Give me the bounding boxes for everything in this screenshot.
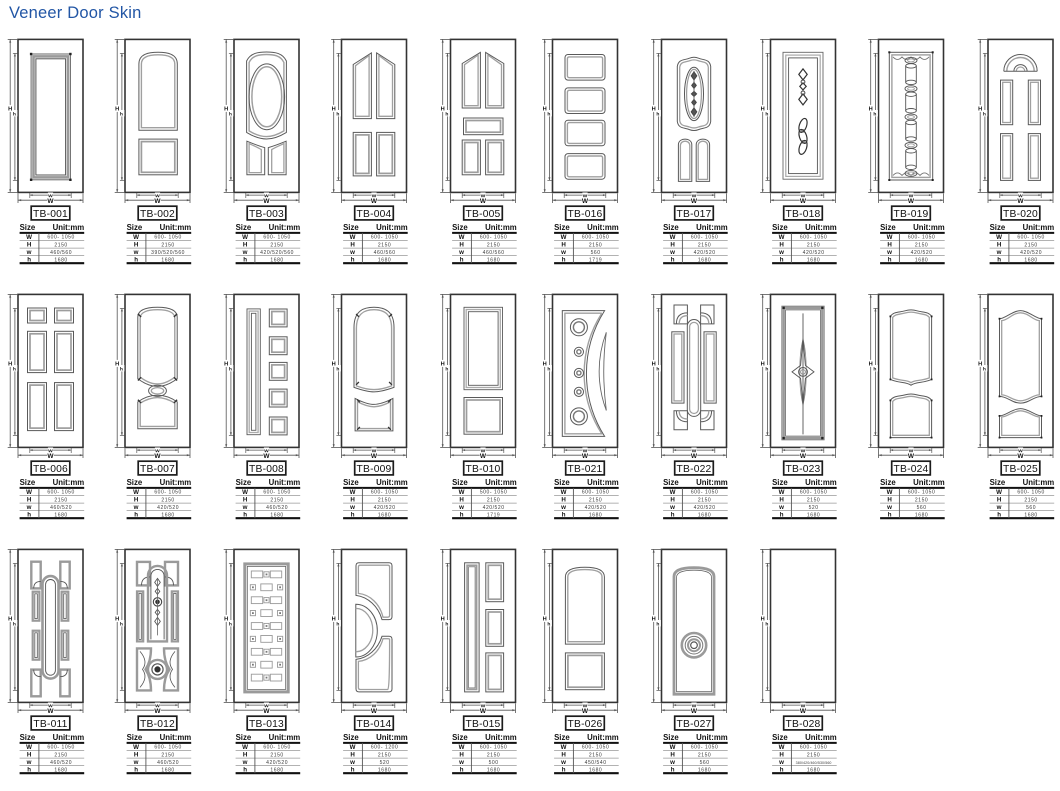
svg-text:w: w — [560, 249, 566, 256]
svg-text:TB-021: TB-021 — [568, 464, 603, 475]
svg-text:H: H — [561, 752, 566, 759]
svg-text:H: H — [115, 617, 119, 623]
svg-text:600- 1050: 600- 1050 — [47, 745, 74, 751]
svg-text:h: h — [873, 111, 876, 117]
svg-text:Size: Size — [343, 478, 359, 487]
svg-text:w: w — [669, 504, 675, 511]
svg-text:TB-028: TB-028 — [786, 719, 821, 730]
svg-text:W: W — [800, 198, 807, 205]
svg-text:2150: 2150 — [270, 752, 283, 758]
svg-text:2150: 2150 — [1024, 242, 1037, 248]
svg-text:H: H — [350, 497, 355, 504]
svg-text:w: w — [349, 759, 355, 766]
svg-text:h: h — [547, 621, 550, 627]
svg-text:2150: 2150 — [807, 242, 820, 248]
svg-text:H: H — [459, 242, 464, 249]
svg-text:h: h — [27, 767, 31, 774]
svg-text:1680: 1680 — [54, 767, 67, 773]
svg-text:W: W — [371, 708, 378, 715]
svg-text:2150: 2150 — [698, 497, 711, 503]
svg-text:1680: 1680 — [698, 512, 711, 518]
svg-text:H: H — [978, 362, 982, 368]
svg-text:2150: 2150 — [54, 497, 67, 503]
svg-text:460/560: 460/560 — [374, 250, 396, 256]
svg-text:2150: 2150 — [1024, 497, 1037, 503]
svg-text:h: h — [120, 621, 123, 627]
svg-text:W: W — [691, 708, 698, 715]
svg-text:Unit:mm: Unit:mm — [587, 223, 619, 232]
svg-text:460/520: 460/520 — [50, 760, 72, 766]
svg-text:380/420/460/530/560: 380/420/460/530/560 — [796, 761, 832, 765]
svg-text:TB-005: TB-005 — [466, 209, 501, 220]
svg-text:h: h — [134, 257, 138, 264]
svg-text:h: h — [888, 257, 892, 264]
svg-text:1680: 1680 — [54, 257, 67, 263]
svg-text:Unit:mm: Unit:mm — [913, 223, 945, 232]
svg-text:600- 1050: 600- 1050 — [582, 745, 609, 751]
svg-text:Unit:mm: Unit:mm — [160, 733, 192, 742]
svg-text:2150: 2150 — [698, 242, 711, 248]
svg-text:560: 560 — [1026, 505, 1036, 511]
svg-text:460/520: 460/520 — [157, 760, 179, 766]
svg-text:1680: 1680 — [698, 257, 711, 263]
svg-text:Unit:mm: Unit:mm — [376, 733, 408, 742]
svg-text:420/520: 420/520 — [266, 760, 288, 766]
svg-text:2150: 2150 — [807, 497, 820, 503]
svg-text:TB-011: TB-011 — [33, 719, 67, 730]
svg-text:TB-027: TB-027 — [677, 719, 712, 730]
svg-text:h: h — [445, 111, 448, 117]
svg-text:h: h — [336, 111, 339, 117]
svg-text:H: H — [224, 107, 228, 113]
svg-text:560: 560 — [917, 505, 927, 511]
svg-text:w: w — [886, 249, 892, 256]
svg-text:Unit:mm: Unit:mm — [1023, 478, 1055, 487]
svg-text:TB-008: TB-008 — [249, 464, 284, 475]
svg-text:h: h — [780, 257, 784, 264]
svg-text:W: W — [371, 198, 378, 205]
svg-text:h: h — [13, 621, 16, 627]
svg-text:W: W — [800, 453, 807, 460]
svg-text:Size: Size — [554, 478, 570, 487]
svg-text:1680: 1680 — [378, 767, 391, 773]
svg-text:w: w — [458, 249, 464, 256]
svg-text:1680: 1680 — [161, 767, 174, 773]
svg-text:w: w — [669, 759, 675, 766]
svg-text:Unit:mm: Unit:mm — [53, 478, 85, 487]
svg-text:TB-023: TB-023 — [786, 464, 821, 475]
svg-text:600- 1050: 600- 1050 — [263, 490, 290, 496]
svg-text:W: W — [242, 744, 248, 751]
svg-text:Unit:mm: Unit:mm — [587, 478, 619, 487]
svg-text:H: H — [761, 107, 765, 113]
svg-text:600- 1050: 600- 1050 — [480, 745, 507, 751]
svg-text:H: H — [670, 752, 675, 759]
svg-text:H: H — [997, 242, 1002, 249]
svg-text:Unit:mm: Unit:mm — [805, 478, 837, 487]
svg-text:600- 1050: 600- 1050 — [154, 745, 181, 751]
svg-text:H: H — [887, 497, 892, 504]
svg-text:W: W — [691, 453, 698, 460]
svg-text:W: W — [779, 489, 785, 496]
svg-text:2150: 2150 — [378, 752, 391, 758]
svg-text:1680: 1680 — [1024, 512, 1037, 518]
svg-text:TB-018: TB-018 — [786, 209, 821, 220]
svg-text:H: H — [134, 497, 139, 504]
svg-text:H: H — [115, 362, 119, 368]
svg-text:W: W — [242, 234, 248, 241]
svg-text:Unit:mm: Unit:mm — [376, 223, 408, 232]
svg-text:W: W — [154, 198, 161, 205]
svg-text:H: H — [670, 497, 675, 504]
svg-text:Size: Size — [990, 223, 1006, 232]
svg-text:1680: 1680 — [161, 512, 174, 518]
svg-text:w: w — [133, 249, 139, 256]
svg-text:600- 1050: 600- 1050 — [582, 490, 609, 496]
svg-text:H: H — [652, 107, 656, 113]
svg-text:W: W — [582, 198, 589, 205]
svg-text:Size: Size — [990, 478, 1006, 487]
svg-text:w: w — [778, 249, 784, 256]
svg-text:W: W — [263, 198, 270, 205]
svg-text:TB-024: TB-024 — [894, 464, 929, 475]
svg-text:Size: Size — [772, 478, 788, 487]
svg-text:600- 1050: 600- 1050 — [800, 490, 827, 496]
svg-text:600- 1050: 600- 1050 — [263, 745, 290, 751]
svg-text:390/520/560: 390/520/560 — [151, 250, 185, 256]
svg-text:600- 1050: 600- 1050 — [263, 235, 290, 241]
svg-text:600- 1200: 600- 1200 — [371, 745, 398, 751]
svg-text:TB-025: TB-025 — [1003, 464, 1038, 475]
svg-text:H: H — [997, 497, 1002, 504]
svg-text:Unit:mm: Unit:mm — [805, 733, 837, 742]
svg-text:600- 1050: 600- 1050 — [800, 235, 827, 241]
svg-text:w: w — [458, 759, 464, 766]
svg-text:W: W — [26, 234, 32, 241]
svg-text:420/520: 420/520 — [1020, 250, 1042, 256]
svg-text:W: W — [1017, 453, 1024, 460]
svg-text:2150: 2150 — [487, 752, 500, 758]
svg-text:Size: Size — [343, 223, 359, 232]
svg-text:Size: Size — [20, 478, 36, 487]
svg-text:Size: Size — [772, 733, 788, 742]
svg-text:H: H — [779, 752, 784, 759]
svg-text:2150: 2150 — [54, 752, 67, 758]
svg-text:H: H — [332, 617, 336, 623]
svg-text:h: h — [765, 111, 768, 117]
svg-text:Unit:mm: Unit:mm — [160, 223, 192, 232]
svg-text:Unit:mm: Unit:mm — [269, 223, 301, 232]
svg-text:Unit:mm: Unit:mm — [485, 478, 517, 487]
svg-text:H: H — [543, 362, 547, 368]
svg-text:2150: 2150 — [161, 752, 174, 758]
svg-text:Size: Size — [452, 733, 468, 742]
svg-text:600- 1050: 600- 1050 — [800, 745, 827, 751]
svg-text:1680: 1680 — [378, 257, 391, 263]
svg-text:W: W — [26, 744, 32, 751]
svg-text:W: W — [47, 198, 54, 205]
svg-text:2150: 2150 — [54, 242, 67, 248]
svg-text:W: W — [350, 234, 356, 241]
svg-text:W: W — [263, 708, 270, 715]
svg-text:W: W — [779, 234, 785, 241]
svg-text:2150: 2150 — [915, 497, 928, 503]
svg-text:W: W — [47, 708, 54, 715]
svg-text:h: h — [243, 512, 247, 519]
svg-text:H: H — [652, 617, 656, 623]
svg-text:H: H — [134, 242, 139, 249]
svg-text:TB-020: TB-020 — [1003, 209, 1038, 220]
svg-text:H: H — [761, 617, 765, 623]
svg-text:TB-009: TB-009 — [357, 464, 392, 475]
svg-text:h: h — [460, 512, 464, 519]
svg-text:420/520: 420/520 — [694, 250, 716, 256]
svg-text:h: h — [229, 621, 232, 627]
svg-text:420/520: 420/520 — [694, 505, 716, 511]
svg-text:600- 1050: 600- 1050 — [154, 490, 181, 496]
svg-text:Size: Size — [772, 223, 788, 232]
svg-text:2150: 2150 — [698, 752, 711, 758]
svg-text:Unit:mm: Unit:mm — [269, 478, 301, 487]
svg-text:H: H — [8, 362, 12, 368]
svg-text:1680: 1680 — [807, 512, 820, 518]
svg-text:H: H — [441, 362, 445, 368]
svg-text:TB-001: TB-001 — [33, 209, 68, 220]
svg-text:h: h — [671, 257, 675, 264]
svg-text:W: W — [459, 234, 465, 241]
svg-text:h: h — [229, 111, 232, 117]
svg-text:600- 1050: 600- 1050 — [154, 235, 181, 241]
svg-text:1680: 1680 — [270, 767, 283, 773]
svg-text:Size: Size — [554, 733, 570, 742]
svg-text:h: h — [460, 767, 464, 774]
svg-text:H: H — [869, 362, 873, 368]
svg-text:TB-002: TB-002 — [140, 209, 175, 220]
svg-text:W: W — [133, 489, 139, 496]
svg-text:H: H — [869, 107, 873, 113]
svg-text:H: H — [543, 617, 547, 623]
svg-text:h: h — [780, 767, 784, 774]
svg-text:W: W — [996, 489, 1002, 496]
svg-text:h: h — [765, 366, 768, 372]
svg-text:h: h — [134, 767, 138, 774]
svg-text:W: W — [133, 744, 139, 751]
svg-text:W: W — [561, 489, 567, 496]
svg-text:h: h — [120, 111, 123, 117]
svg-text:Unit:mm: Unit:mm — [269, 733, 301, 742]
svg-text:w: w — [778, 759, 784, 766]
svg-text:h: h — [547, 366, 550, 372]
svg-text:H: H — [779, 497, 784, 504]
svg-text:460/560: 460/560 — [483, 250, 505, 256]
svg-text:W: W — [800, 708, 807, 715]
svg-text:1680: 1680 — [807, 257, 820, 263]
svg-text:Size: Size — [452, 223, 468, 232]
svg-text:TB-006: TB-006 — [33, 464, 68, 475]
svg-text:Size: Size — [663, 478, 679, 487]
svg-text:w: w — [560, 504, 566, 511]
svg-text:W: W — [670, 234, 676, 241]
svg-text:w: w — [669, 249, 675, 256]
svg-text:w: w — [996, 504, 1002, 511]
svg-text:460/520: 460/520 — [50, 505, 72, 511]
svg-text:W: W — [582, 453, 589, 460]
svg-text:2150: 2150 — [378, 497, 391, 503]
svg-text:w: w — [133, 504, 139, 511]
svg-text:W: W — [779, 744, 785, 751]
svg-text:1680: 1680 — [1024, 257, 1037, 263]
svg-text:1680: 1680 — [915, 257, 928, 263]
svg-text:W: W — [459, 744, 465, 751]
svg-text:Size: Size — [236, 223, 252, 232]
svg-text:h: h — [671, 767, 675, 774]
svg-text:2150: 2150 — [589, 242, 602, 248]
svg-text:2150: 2150 — [589, 752, 602, 758]
svg-text:420/520: 420/520 — [585, 505, 607, 511]
svg-text:Unit:mm: Unit:mm — [485, 733, 517, 742]
svg-text:h: h — [888, 512, 892, 519]
svg-text:Size: Size — [127, 733, 143, 742]
svg-text:h: h — [351, 257, 355, 264]
svg-text:Size: Size — [343, 733, 359, 742]
svg-text:H: H — [27, 242, 32, 249]
svg-text:1680: 1680 — [270, 512, 283, 518]
svg-text:1680: 1680 — [161, 257, 174, 263]
svg-text:460/520: 460/520 — [266, 505, 288, 511]
svg-text:Size: Size — [20, 733, 36, 742]
svg-text:600- 1050: 600- 1050 — [371, 490, 398, 496]
svg-text:W: W — [582, 708, 589, 715]
svg-text:500: 500 — [489, 760, 499, 766]
svg-text:Unit:mm: Unit:mm — [696, 478, 728, 487]
svg-text:420/520: 420/520 — [157, 505, 179, 511]
svg-text:420/520: 420/520 — [911, 250, 933, 256]
svg-text:TB-026: TB-026 — [568, 719, 603, 730]
svg-text:w: w — [133, 759, 139, 766]
svg-text:600- 1050: 600- 1050 — [480, 235, 507, 241]
svg-text:H: H — [332, 362, 336, 368]
svg-text:TB-007: TB-007 — [140, 464, 175, 475]
svg-text:W: W — [996, 234, 1002, 241]
svg-text:1719: 1719 — [589, 257, 602, 263]
svg-text:Size: Size — [880, 478, 896, 487]
svg-text:2150: 2150 — [161, 497, 174, 503]
svg-text:2150: 2150 — [378, 242, 391, 248]
svg-text:H: H — [332, 107, 336, 113]
svg-text:520: 520 — [380, 760, 390, 766]
svg-text:h: h — [562, 767, 566, 774]
svg-text:Unit:mm: Unit:mm — [485, 223, 517, 232]
svg-text:Unit:mm: Unit:mm — [913, 478, 945, 487]
svg-text:W: W — [26, 489, 32, 496]
svg-text:W: W — [459, 489, 465, 496]
svg-text:h: h — [229, 366, 232, 372]
svg-text:W: W — [908, 198, 915, 205]
svg-text:2150: 2150 — [807, 752, 820, 758]
svg-text:W: W — [691, 198, 698, 205]
svg-text:TB-012: TB-012 — [140, 719, 175, 730]
svg-text:TB-016: TB-016 — [568, 209, 603, 220]
svg-text:Unit:mm: Unit:mm — [696, 733, 728, 742]
svg-text:w: w — [458, 504, 464, 511]
svg-text:h: h — [351, 512, 355, 519]
svg-text:1680: 1680 — [915, 512, 928, 518]
svg-text:TB-003: TB-003 — [249, 209, 284, 220]
svg-text:h: h — [243, 257, 247, 264]
svg-text:h: h — [983, 366, 986, 372]
svg-text:w: w — [26, 759, 32, 766]
svg-text:h: h — [13, 366, 16, 372]
svg-text:w: w — [349, 249, 355, 256]
svg-text:h: h — [997, 512, 1001, 519]
svg-text:Size: Size — [236, 733, 252, 742]
svg-text:460/560: 460/560 — [50, 250, 72, 256]
svg-text:H: H — [761, 362, 765, 368]
svg-text:2150: 2150 — [589, 497, 602, 503]
svg-text:2150: 2150 — [487, 242, 500, 248]
svg-text:Unit:mm: Unit:mm — [805, 223, 837, 232]
svg-text:h: h — [460, 257, 464, 264]
svg-text:H: H — [543, 107, 547, 113]
svg-text:520: 520 — [809, 505, 819, 511]
svg-text:600- 1050: 600- 1050 — [691, 490, 718, 496]
svg-text:W: W — [670, 489, 676, 496]
svg-text:2150: 2150 — [487, 497, 500, 503]
svg-text:420/520: 420/520 — [374, 505, 396, 511]
svg-text:Size: Size — [663, 223, 679, 232]
svg-text:420/520: 420/520 — [483, 505, 505, 511]
svg-text:600- 1050: 600- 1050 — [1017, 490, 1044, 496]
svg-text:w: w — [996, 249, 1002, 256]
svg-text:Unit:mm: Unit:mm — [160, 478, 192, 487]
svg-text:W: W — [561, 744, 567, 751]
svg-text:2150: 2150 — [161, 242, 174, 248]
svg-text:H: H — [978, 107, 982, 113]
svg-text:Unit:mm: Unit:mm — [587, 733, 619, 742]
svg-text:w: w — [242, 249, 248, 256]
svg-text:2150: 2150 — [270, 242, 283, 248]
svg-text:h: h — [983, 111, 986, 117]
svg-text:1680: 1680 — [487, 767, 500, 773]
svg-text:H: H — [459, 752, 464, 759]
svg-text:H: H — [561, 242, 566, 249]
svg-text:Size: Size — [127, 478, 143, 487]
svg-text:h: h — [120, 366, 123, 372]
svg-text:420/520: 420/520 — [803, 250, 825, 256]
svg-text:h: h — [562, 512, 566, 519]
svg-text:H: H — [243, 497, 248, 504]
svg-text:W: W — [350, 489, 356, 496]
svg-text:600- 1050: 600- 1050 — [908, 490, 935, 496]
svg-text:h: h — [547, 111, 550, 117]
svg-text:1680: 1680 — [698, 767, 711, 773]
svg-text:H: H — [441, 107, 445, 113]
svg-text:W: W — [480, 708, 487, 715]
svg-text:H: H — [459, 497, 464, 504]
svg-text:h: h — [13, 111, 16, 117]
svg-text:H: H — [561, 497, 566, 504]
svg-text:Unit:mm: Unit:mm — [53, 733, 85, 742]
svg-text:w: w — [242, 759, 248, 766]
svg-text:W: W — [154, 453, 161, 460]
svg-text:1680: 1680 — [54, 512, 67, 518]
svg-text:h: h — [765, 621, 768, 627]
svg-text:h: h — [656, 621, 659, 627]
svg-text:w: w — [26, 249, 32, 256]
svg-text:Size: Size — [452, 478, 468, 487]
svg-text:h: h — [671, 512, 675, 519]
svg-text:H: H — [8, 107, 12, 113]
